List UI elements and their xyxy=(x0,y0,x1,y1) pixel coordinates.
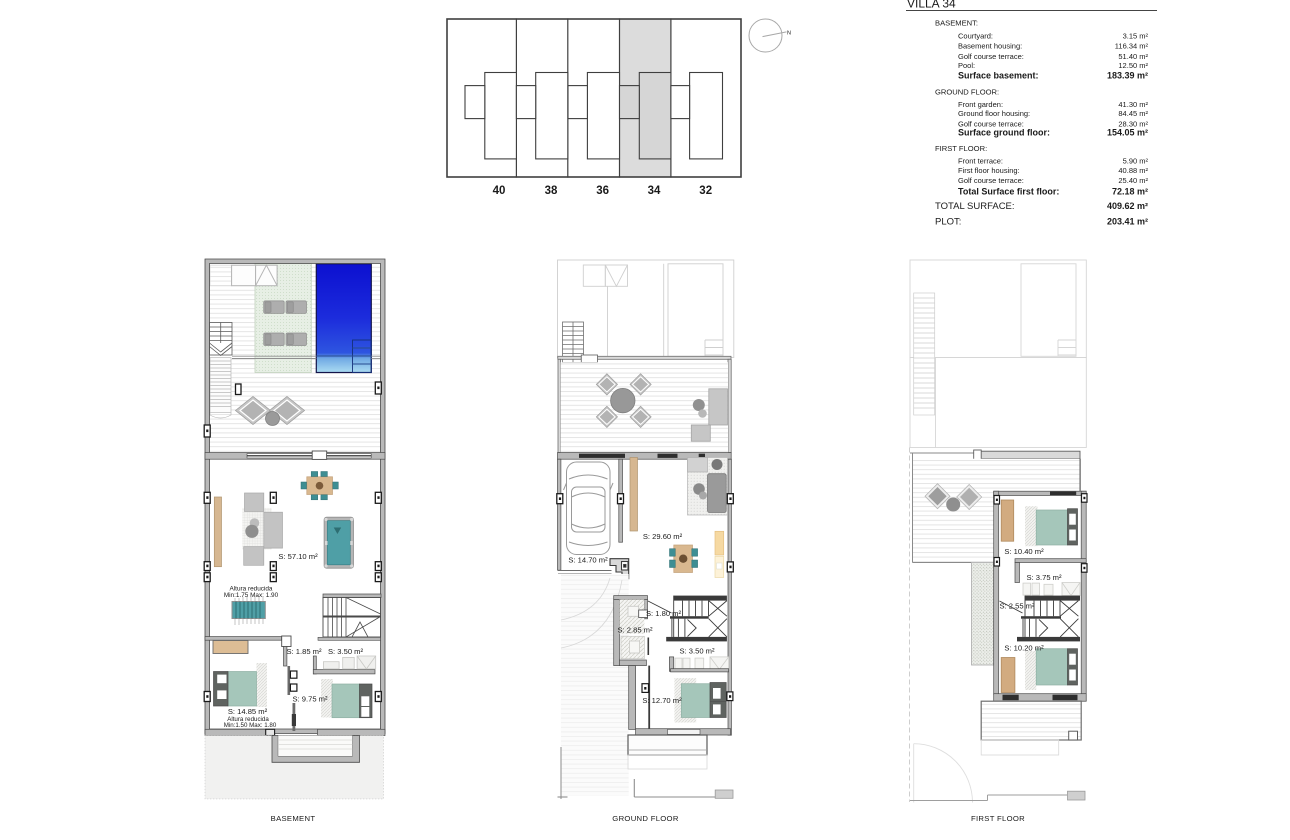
svg-text:51.40 m²: 51.40 m² xyxy=(1118,52,1148,61)
svg-text:32: 32 xyxy=(699,185,712,197)
svg-text:203.41 m²: 203.41 m² xyxy=(1107,217,1148,227)
svg-text:BASEMENT:: BASEMENT: xyxy=(935,19,978,28)
svg-text:Basement housing:: Basement housing: xyxy=(958,42,1022,51)
svg-text:S: 14.85 m²: S: 14.85 m² xyxy=(228,707,268,716)
svg-text:S: 29.60 m²: S: 29.60 m² xyxy=(643,532,683,541)
svg-text:Golf course terrace:: Golf course terrace: xyxy=(958,52,1024,61)
svg-text:S: 10.40 m²: S: 10.40 m² xyxy=(1004,547,1044,556)
svg-text:154.05 m²: 154.05 m² xyxy=(1107,127,1148,137)
svg-text:VILLA 34: VILLA 34 xyxy=(907,0,956,11)
svg-text:Total Surface first floor:: Total Surface first floor: xyxy=(958,186,1059,196)
svg-text:S: 3.50 m²: S: 3.50 m² xyxy=(679,647,714,656)
svg-text:Surface ground floor:: Surface ground floor: xyxy=(958,127,1050,137)
svg-text:36: 36 xyxy=(596,185,609,197)
svg-text:FIRST FLOOR: FIRST FLOOR xyxy=(971,814,1025,823)
svg-text:S: 2.55 m²: S: 2.55 m² xyxy=(999,602,1034,611)
svg-text:Surface basement:: Surface basement: xyxy=(958,71,1039,81)
svg-text:25.40 m²: 25.40 m² xyxy=(1118,176,1148,185)
svg-text:72.18 m²: 72.18 m² xyxy=(1112,186,1148,196)
svg-text:S: 1.85 m²: S: 1.85 m² xyxy=(286,647,321,656)
svg-text:Min:1.50 Max: 1.80: Min:1.50 Max: 1.80 xyxy=(224,722,277,729)
svg-text:BASEMENT: BASEMENT xyxy=(271,814,316,823)
svg-text:PLOT:: PLOT: xyxy=(935,217,961,228)
svg-text:S: 12.70 m²: S: 12.70 m² xyxy=(642,696,682,705)
svg-text:116.34 m²: 116.34 m² xyxy=(1115,42,1149,51)
svg-text:GROUND FLOOR: GROUND FLOOR xyxy=(612,814,679,823)
svg-text:Front garden:: Front garden: xyxy=(958,100,1003,109)
svg-text:409.62 m²: 409.62 m² xyxy=(1107,201,1148,211)
svg-text:S: 9.75 m²: S: 9.75 m² xyxy=(292,695,327,704)
svg-text:FIRST FLOOR:: FIRST FLOOR: xyxy=(935,144,987,153)
svg-text:Pool:: Pool: xyxy=(958,61,975,70)
svg-text:40: 40 xyxy=(493,185,506,197)
svg-text:Courtyard:: Courtyard: xyxy=(958,32,993,41)
svg-text:S: 3.50 m²: S: 3.50 m² xyxy=(328,647,363,656)
svg-text:S: 57.10 m²: S: 57.10 m² xyxy=(278,552,318,561)
svg-text:12.50 m²: 12.50 m² xyxy=(1118,61,1148,70)
svg-text:S: 3.75 m²: S: 3.75 m² xyxy=(1026,573,1061,582)
svg-text:3.15 m²: 3.15 m² xyxy=(1123,32,1149,41)
svg-text:S: 2.85 m²: S: 2.85 m² xyxy=(617,626,652,635)
svg-text:S: 10.20 m²: S: 10.20 m² xyxy=(1004,644,1044,653)
svg-text:183.39 m²: 183.39 m² xyxy=(1107,71,1148,81)
svg-text:N: N xyxy=(787,31,791,37)
svg-text:GROUND FLOOR:: GROUND FLOOR: xyxy=(935,88,999,97)
svg-text:34: 34 xyxy=(648,185,661,197)
svg-text:Front terrace:: Front terrace: xyxy=(958,157,1003,166)
svg-text:Golf course terrace:: Golf course terrace: xyxy=(958,176,1024,185)
svg-text:84.45 m²: 84.45 m² xyxy=(1118,109,1148,118)
svg-text:38: 38 xyxy=(545,185,558,197)
svg-text:40.88 m²: 40.88 m² xyxy=(1118,166,1148,175)
svg-text:TOTAL SURFACE:: TOTAL SURFACE: xyxy=(935,201,1015,212)
svg-text:41.30 m²: 41.30 m² xyxy=(1118,100,1148,109)
svg-text:First floor housing:: First floor housing: xyxy=(958,166,1020,175)
svg-text:Ground floor housing:: Ground floor housing: xyxy=(958,109,1030,118)
svg-text:S: 14.70 m²: S: 14.70 m² xyxy=(568,556,608,565)
svg-text:5.90 m²: 5.90 m² xyxy=(1123,157,1149,166)
